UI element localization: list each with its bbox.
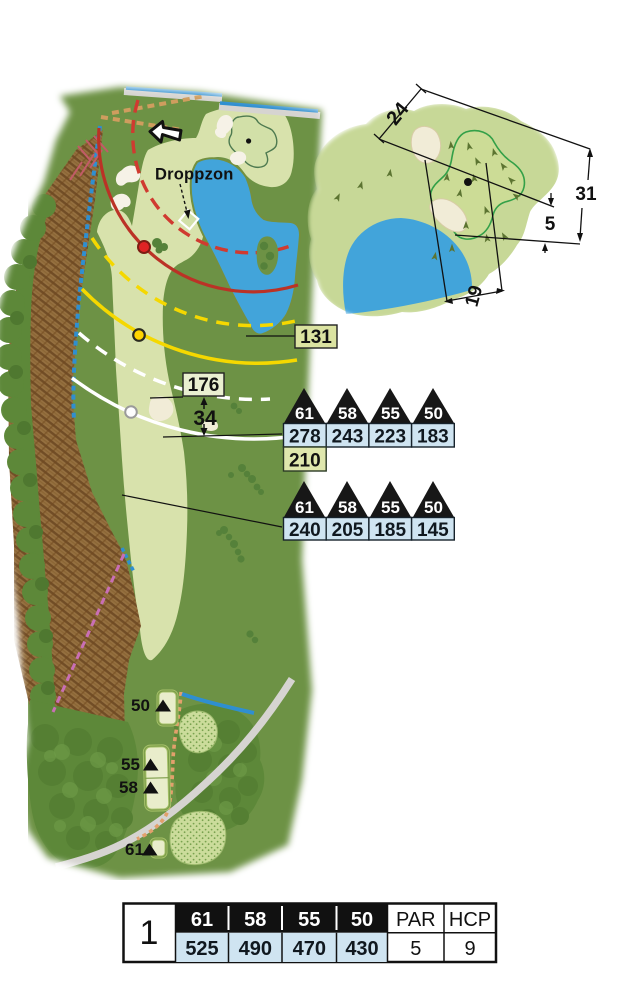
svg-text:490: 490 (239, 938, 272, 960)
svg-text:19: 19 (462, 283, 488, 309)
svg-text:61: 61 (191, 909, 213, 931)
svg-text:58: 58 (338, 498, 357, 517)
svg-text:183: 183 (417, 427, 449, 448)
svg-text:55: 55 (381, 498, 400, 517)
svg-text:PAR: PAR (396, 909, 436, 931)
svg-text:470: 470 (293, 938, 326, 960)
svg-text:HCP: HCP (449, 909, 491, 931)
svg-text:50: 50 (131, 696, 150, 715)
svg-text:5: 5 (410, 938, 421, 960)
svg-text:145: 145 (417, 520, 449, 541)
svg-text:61: 61 (125, 840, 144, 859)
svg-text:50: 50 (424, 498, 443, 517)
svg-text:61: 61 (295, 404, 314, 423)
svg-text:223: 223 (374, 427, 406, 448)
svg-text:5: 5 (545, 214, 556, 235)
svg-text:55: 55 (121, 755, 140, 774)
svg-text:58: 58 (244, 909, 266, 931)
svg-text:34: 34 (193, 407, 217, 430)
svg-text:50: 50 (424, 404, 443, 423)
svg-text:185: 185 (374, 520, 406, 541)
svg-text:31: 31 (575, 184, 597, 205)
svg-text:Droppzon: Droppzon (155, 166, 234, 184)
svg-text:205: 205 (332, 520, 364, 541)
svg-text:61: 61 (295, 498, 314, 517)
svg-text:50: 50 (351, 909, 373, 931)
svg-text:278: 278 (289, 427, 321, 448)
svg-text:1: 1 (140, 914, 159, 952)
svg-text:240: 240 (289, 520, 321, 541)
svg-text:176: 176 (188, 375, 220, 396)
svg-text:131: 131 (300, 327, 332, 348)
svg-text:210: 210 (289, 451, 321, 472)
svg-text:58: 58 (338, 404, 357, 423)
svg-text:55: 55 (381, 404, 400, 423)
svg-text:58: 58 (119, 778, 138, 797)
svg-text:525: 525 (185, 938, 218, 960)
svg-text:430: 430 (345, 938, 378, 960)
svg-text:55: 55 (298, 909, 320, 931)
svg-text:9: 9 (464, 938, 475, 960)
svg-text:243: 243 (332, 427, 364, 448)
